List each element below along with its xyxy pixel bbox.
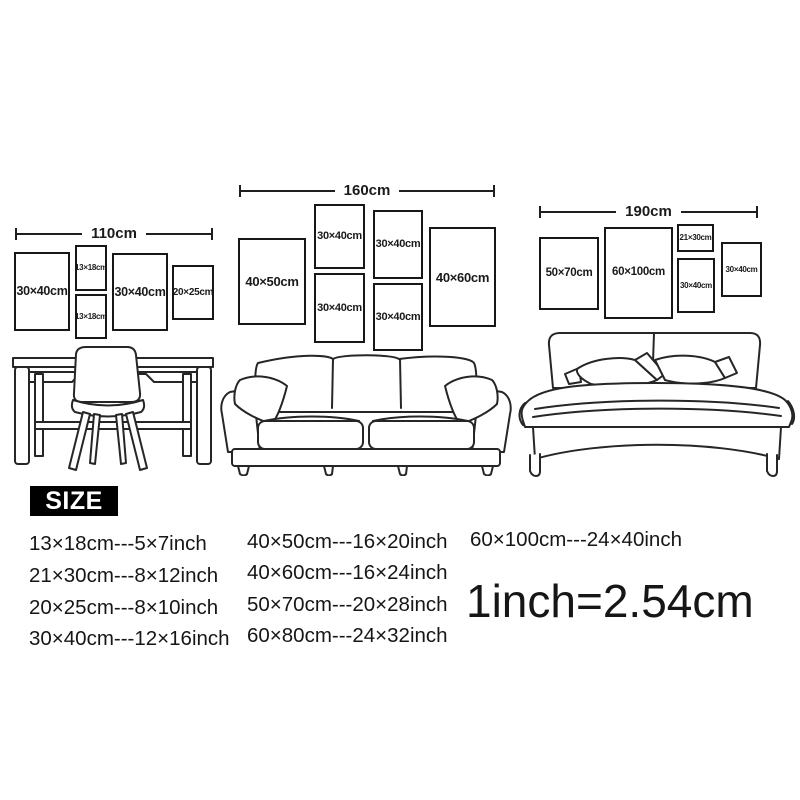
size-conversion-row: 21×30cm---8×12inch (29, 565, 218, 588)
size-conversion-row: 60×100cm---24×40inch (470, 529, 682, 552)
arrow-line (541, 211, 616, 213)
size-conversion-row: 40×60cm---16×24inch (247, 562, 448, 585)
dimension-arrow-160cm: 160cm (239, 184, 495, 198)
arrow-line (146, 233, 211, 235)
picture-frame: 40×60cm (429, 227, 496, 327)
picture-frame: 50×70cm (539, 237, 599, 310)
wall-width-label: 110cm (82, 226, 146, 241)
arrow-line (17, 233, 82, 235)
picture-frame: 30×40cm (677, 258, 715, 313)
picture-frame: 60×100cm (604, 227, 673, 319)
picture-frame: 30×40cm (314, 273, 365, 343)
picture-frame: 30×40cm (373, 210, 423, 279)
dimension-arrow-110cm: 110cm (15, 227, 213, 241)
picture-frame: 40×50cm (238, 238, 306, 325)
wall-width-label: 160cm (335, 183, 400, 198)
arrow-line (241, 190, 335, 192)
bed-illustration (513, 328, 800, 478)
inch-cm-conversion-note: 1inch=2.54cm (466, 578, 754, 624)
sofa-illustration (220, 350, 512, 476)
picture-frame: 20×25cm (172, 265, 214, 320)
picture-frame: 30×40cm (373, 283, 423, 351)
size-conversion-row: 60×80cm---24×32inch (247, 625, 448, 648)
arrow-right-tick (756, 206, 758, 218)
size-chart-image: 110cm 30×40cm 13×18cm 13×18cm 30×40cm 20… (0, 0, 800, 800)
size-conversion-row: 50×70cm---20×28inch (247, 594, 448, 617)
dimension-arrow-190cm: 190cm (539, 205, 758, 219)
picture-frame: 30×40cm (314, 204, 365, 269)
arrow-line (399, 190, 493, 192)
picture-frame: 21×30cm (677, 224, 714, 252)
picture-frame: 30×40cm (14, 252, 70, 331)
picture-frame: 30×40cm (721, 242, 762, 297)
size-conversion-row: 13×18cm---5×7inch (29, 533, 207, 556)
picture-frame: 13×18cm (75, 245, 107, 291)
size-conversion-row: 30×40cm---12×16inch (29, 628, 230, 651)
desk-and-chair-illustration (10, 346, 216, 474)
arrow-line (681, 211, 756, 213)
size-heading: SIZE (30, 486, 118, 516)
arrow-right-tick (211, 228, 213, 240)
picture-frame: 13×18cm (75, 294, 107, 339)
arrow-right-tick (493, 185, 495, 197)
picture-frame: 30×40cm (112, 253, 168, 331)
size-conversion-row: 20×25cm---8×10inch (29, 597, 218, 620)
wall-width-label: 190cm (616, 204, 681, 219)
size-conversion-row: 40×50cm---16×20inch (247, 531, 448, 554)
